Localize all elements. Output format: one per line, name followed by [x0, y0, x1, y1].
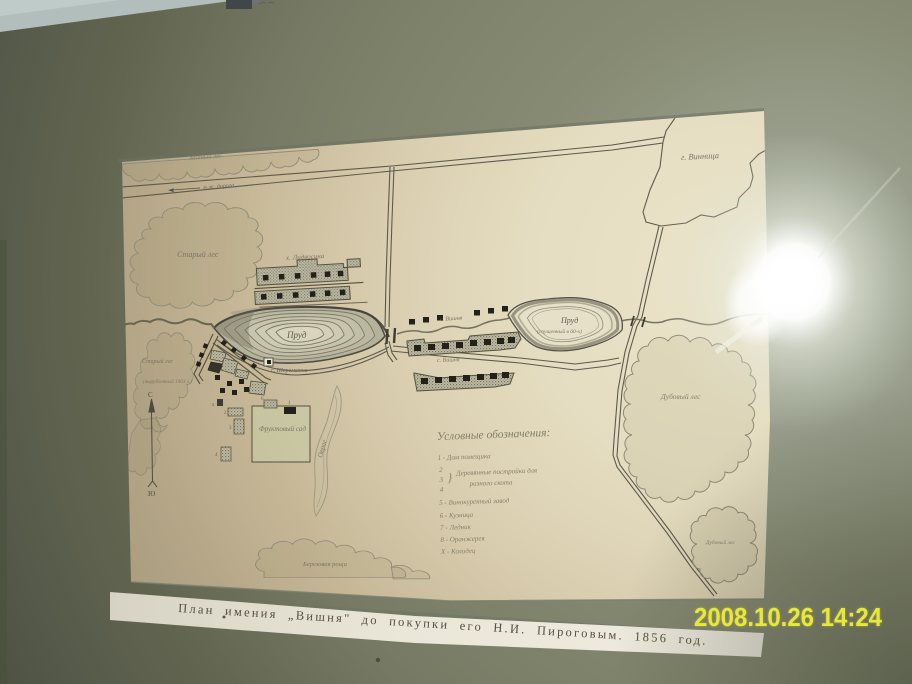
svg-text:(спущенный в 60-х): (спущенный в 60-х) — [537, 328, 582, 335]
svg-text:Старый лес: Старый лес — [142, 358, 173, 365]
svg-text:3: 3 — [438, 476, 443, 484]
svg-text:Фруктовый сад: Фруктовый сад — [259, 425, 306, 433]
svg-text:(вырубленный 1903 г.): (вырубленный 1903 г.) — [143, 378, 192, 385]
svg-text:Х - Колодец: Х - Колодец — [440, 547, 476, 556]
svg-text:Старый лес: Старый лес — [177, 250, 219, 259]
svg-text:8 - Оранжерея: 8 - Оранжерея — [440, 534, 485, 544]
svg-text:С: С — [148, 391, 153, 399]
svg-text:Пруд: Пруд — [286, 330, 307, 340]
svg-text:}: } — [447, 470, 452, 484]
svg-text:Пруд: Пруд — [560, 316, 578, 325]
svg-text:7 - Ледник: 7 - Ледник — [440, 523, 472, 532]
svg-text:разного скота: разного скота — [468, 478, 513, 488]
svg-text:Березовая роща: Березовая роща — [302, 561, 347, 568]
svg-text:6 - Кузница: 6 - Кузница — [440, 511, 474, 520]
svg-text:с. Вишня: с. Вишня — [437, 357, 460, 364]
svg-text:Ю: Ю — [148, 490, 155, 498]
svg-text:с. Шереметка: с. Шереметка — [271, 368, 308, 374]
svg-text:2008.10.26 14:24: 2008.10.26 14:24 — [694, 602, 882, 632]
